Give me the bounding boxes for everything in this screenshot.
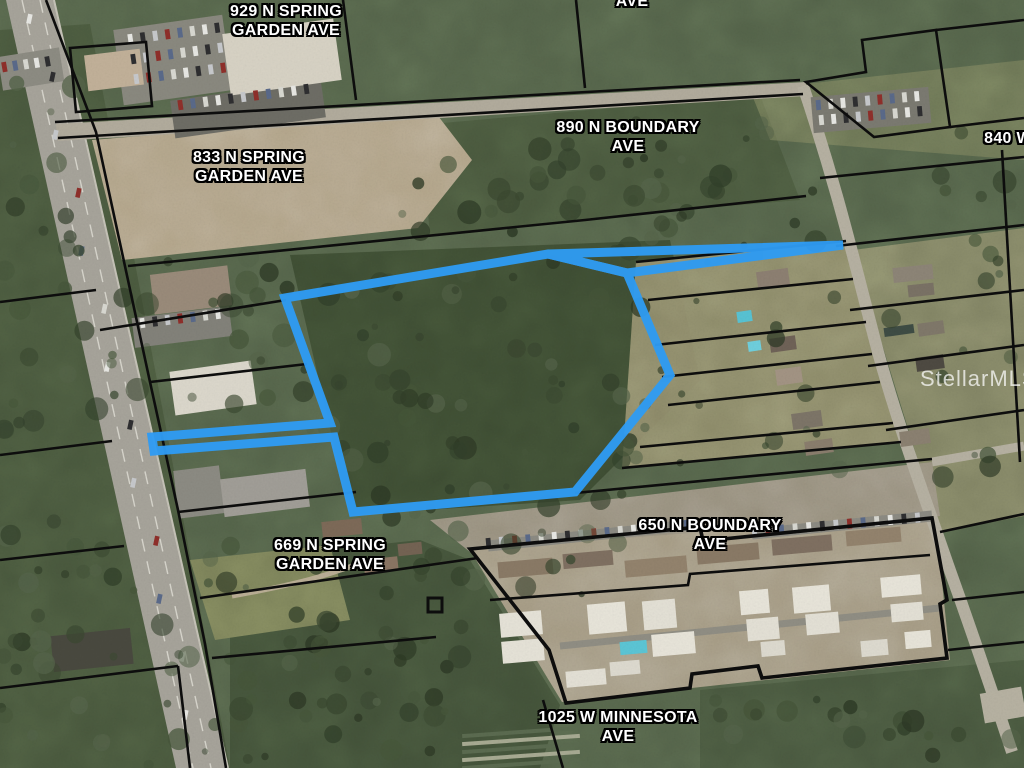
watermark: StellarMLS [920, 366, 1024, 392]
aerial-map[interactable]: 929 N SPRINGGARDEN AVEAVE890 N BOUNDARYA… [0, 0, 1024, 768]
map-canvas[interactable] [0, 0, 1024, 768]
